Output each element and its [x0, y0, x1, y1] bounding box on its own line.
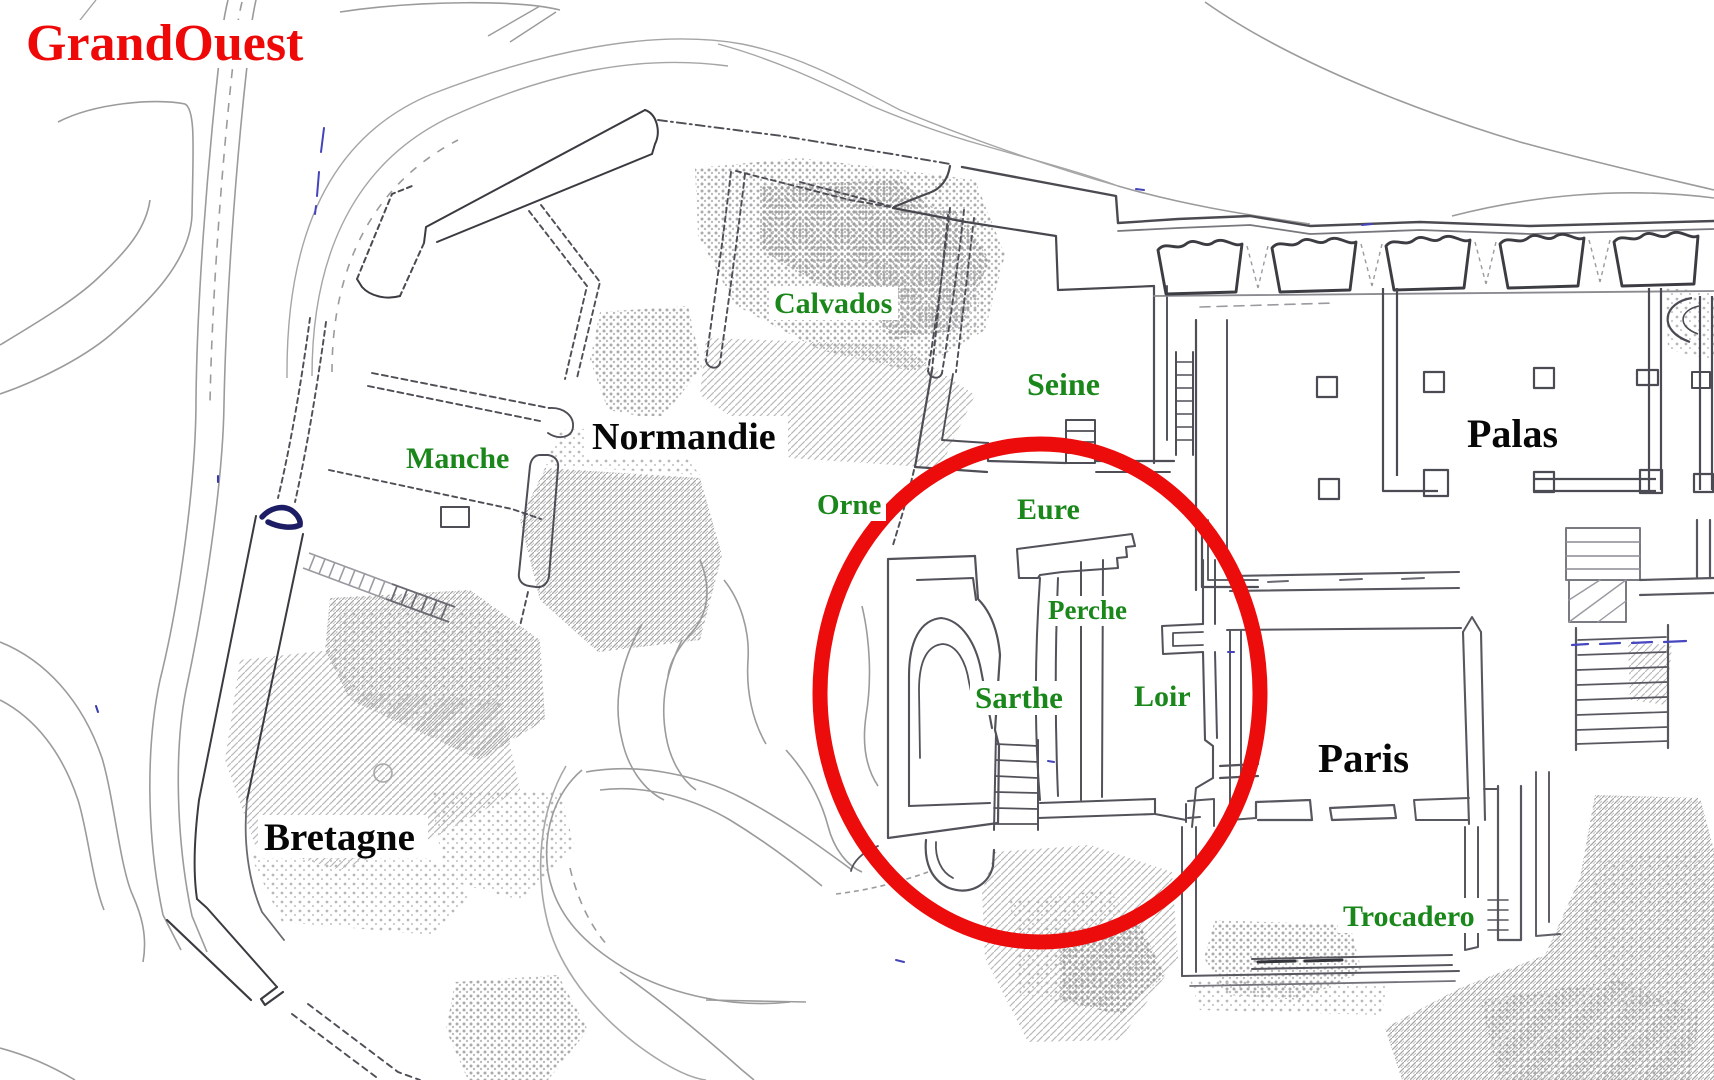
svg-text:Palas: Palas: [1467, 411, 1558, 456]
svg-text:Perche: Perche: [1048, 595, 1127, 625]
svg-text:Orne: Orne: [817, 489, 882, 521]
svg-text:Paris: Paris: [1318, 735, 1409, 781]
svg-text:Sarthe: Sarthe: [975, 680, 1063, 715]
svg-text:Bretagne: Bretagne: [264, 816, 415, 859]
svg-text:Trocadero: Trocadero: [1343, 900, 1475, 933]
svg-text:Loir: Loir: [1134, 680, 1191, 713]
svg-text:Calvados: Calvados: [774, 287, 892, 320]
svg-text:Eure: Eure: [1017, 493, 1080, 526]
svg-text:Seine: Seine: [1027, 366, 1100, 402]
svg-text:Manche: Manche: [406, 442, 509, 475]
svg-text:GrandOuest: GrandOuest: [26, 15, 304, 72]
svg-text:Normandie: Normandie: [592, 416, 776, 458]
